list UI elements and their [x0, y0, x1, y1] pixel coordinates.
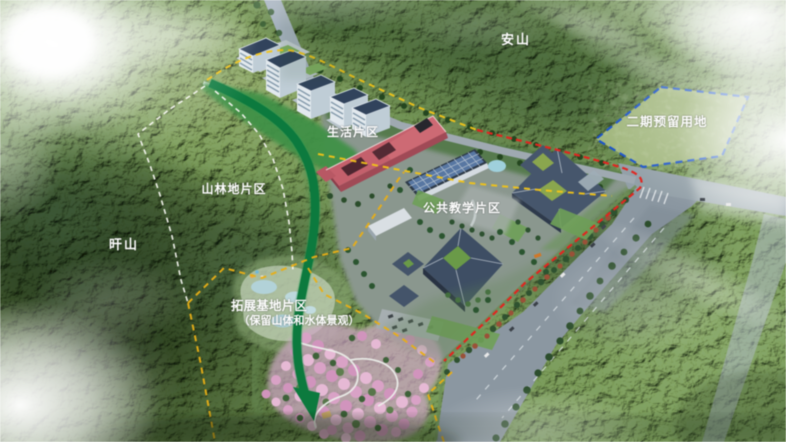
svg-text:山林地片区: 山林地片区	[201, 181, 266, 196]
svg-text:公共教学片区: 公共教学片区	[423, 200, 501, 215]
svg-text:生活片区: 生活片区	[327, 124, 379, 139]
svg-text:拓展基地片区: 拓展基地片区	[231, 298, 308, 313]
svg-text:旰山: 旰山	[109, 237, 139, 252]
svg-text:安山: 安山	[501, 32, 531, 47]
svg-text:（保留山体和水体景观）: （保留山体和水体景观）	[239, 313, 360, 327]
svg-text:二期预留用地: 二期预留用地	[626, 114, 707, 129]
